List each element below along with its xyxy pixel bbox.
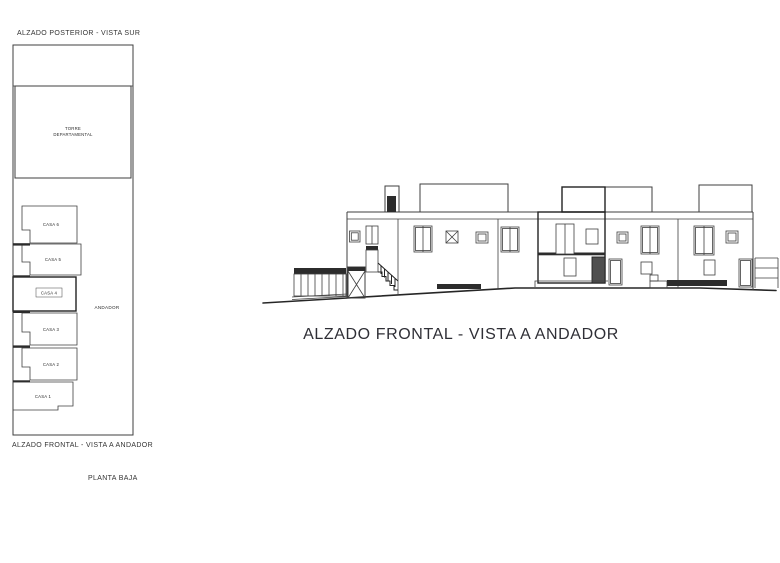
house-casa-3: CASA 3 [22,313,77,345]
floor-label: PLANTA BAJA [88,475,138,482]
house-label: CASA 1 [35,394,52,399]
house-casa-6: CASA 6 [22,206,77,243]
window [641,262,652,274]
highlighted-unit-hatch [538,187,605,283]
entry-stair [378,263,398,290]
door [609,259,622,285]
tower-label-line1: TORRE [65,126,81,131]
tower-label-line2: DEPARTAMENTAL [53,132,93,137]
frontal-elevation: ALZADO FRONTAL - VISTA A ANDADOR [263,184,778,343]
tower-block: TORRE DEPARTAMENTAL [15,86,131,178]
gate-panel-x [348,267,365,298]
window [586,229,598,244]
house-label: CASA 4 [41,291,58,296]
party-wall-marks [13,243,30,382]
site-plan-caption: ALZADO FRONTAL - VISTA A ANDADOR [12,442,153,449]
elevation-title: ALZADO FRONTAL - VISTA A ANDADOR [303,326,619,343]
site-plan-title: ALZADO POSTERIOR - VISTA SUR [17,30,140,37]
site-plan: ALZADO POSTERIOR - VISTA SUR TORRE DEPAR… [12,30,153,482]
ground-line [263,288,776,303]
side-gate [755,258,778,288]
door [592,257,605,283]
window [564,258,576,276]
house-casa-5: CASA 5 [22,244,81,275]
house-casa-4-highlighted: CASA 4 [13,277,76,311]
garden-walls [437,275,727,289]
walkway-label: ANDADOR [94,305,119,310]
chimney [387,196,396,212]
blueprint-page: ALZADO POSTERIOR - VISTA SUR TORRE DEPAR… [0,0,780,563]
house-casa-1: CASA 1 [13,382,73,410]
upper-windows [350,226,739,255]
parcel-outline [13,45,133,435]
door [366,250,378,272]
house-label: CASA 3 [43,327,60,332]
house-label: CASA 6 [43,222,60,227]
house-label: CASA 2 [43,362,60,367]
door [739,259,752,287]
window [704,260,715,275]
house-label: CASA 5 [45,257,62,262]
house-casa-2: CASA 2 [22,348,77,380]
pergola [292,268,347,300]
drawing-canvas: ALZADO POSTERIOR - VISTA SUR TORRE DEPAR… [0,0,780,563]
